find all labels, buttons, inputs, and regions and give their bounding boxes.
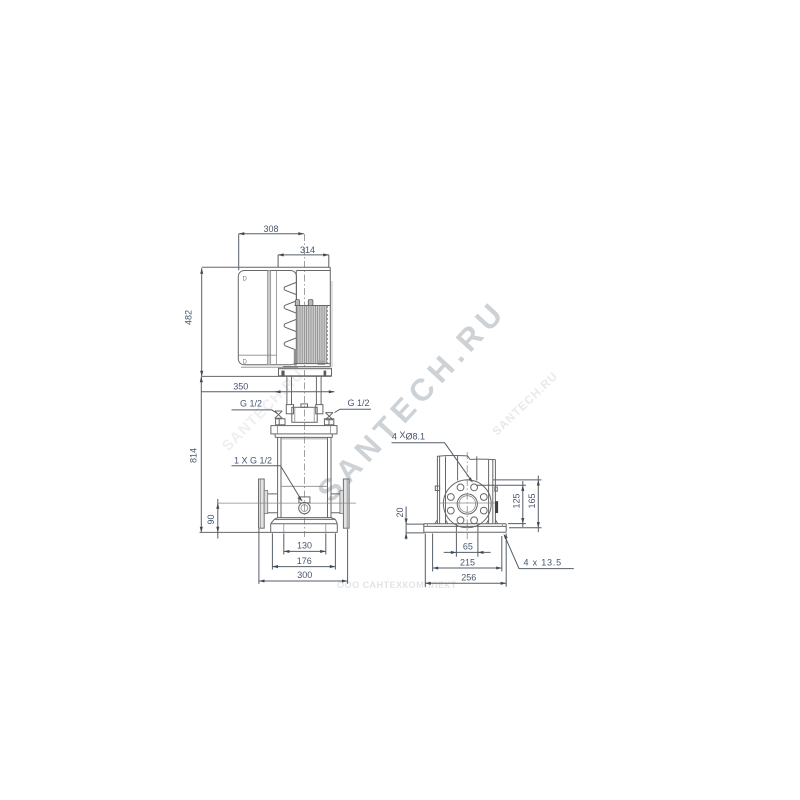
svg-text:300: 300 bbox=[297, 570, 312, 580]
svg-text:256: 256 bbox=[461, 573, 476, 583]
svg-text:350: 350 bbox=[233, 381, 248, 391]
svg-text:1 X G 1/2: 1 X G 1/2 bbox=[234, 456, 272, 466]
svg-text:215: 215 bbox=[460, 557, 475, 567]
svg-text:90: 90 bbox=[206, 514, 216, 524]
svg-text:ООО САНТЕХКОМПЛЕКТ: ООО САНТЕХКОМПЛЕКТ bbox=[337, 580, 457, 590]
svg-text:4 x 13.5: 4 x 13.5 bbox=[524, 558, 562, 568]
svg-text:65: 65 bbox=[463, 542, 473, 552]
svg-text:176: 176 bbox=[297, 556, 312, 566]
svg-text:130: 130 bbox=[297, 541, 312, 551]
svg-text:314: 314 bbox=[300, 245, 315, 255]
svg-text:20: 20 bbox=[395, 507, 405, 517]
svg-text:D: D bbox=[243, 277, 248, 283]
svg-text:482: 482 bbox=[184, 310, 194, 325]
svg-text:165: 165 bbox=[527, 493, 537, 508]
svg-text:125: 125 bbox=[512, 493, 522, 508]
svg-text:308: 308 bbox=[263, 224, 278, 234]
svg-text:G 1/2: G 1/2 bbox=[348, 398, 370, 408]
svg-text:814: 814 bbox=[189, 448, 199, 463]
svg-text:4 XØ8.1: 4 XØ8.1 bbox=[392, 430, 425, 442]
svg-text:G 1/2: G 1/2 bbox=[240, 398, 262, 408]
svg-text:D: D bbox=[243, 360, 248, 366]
